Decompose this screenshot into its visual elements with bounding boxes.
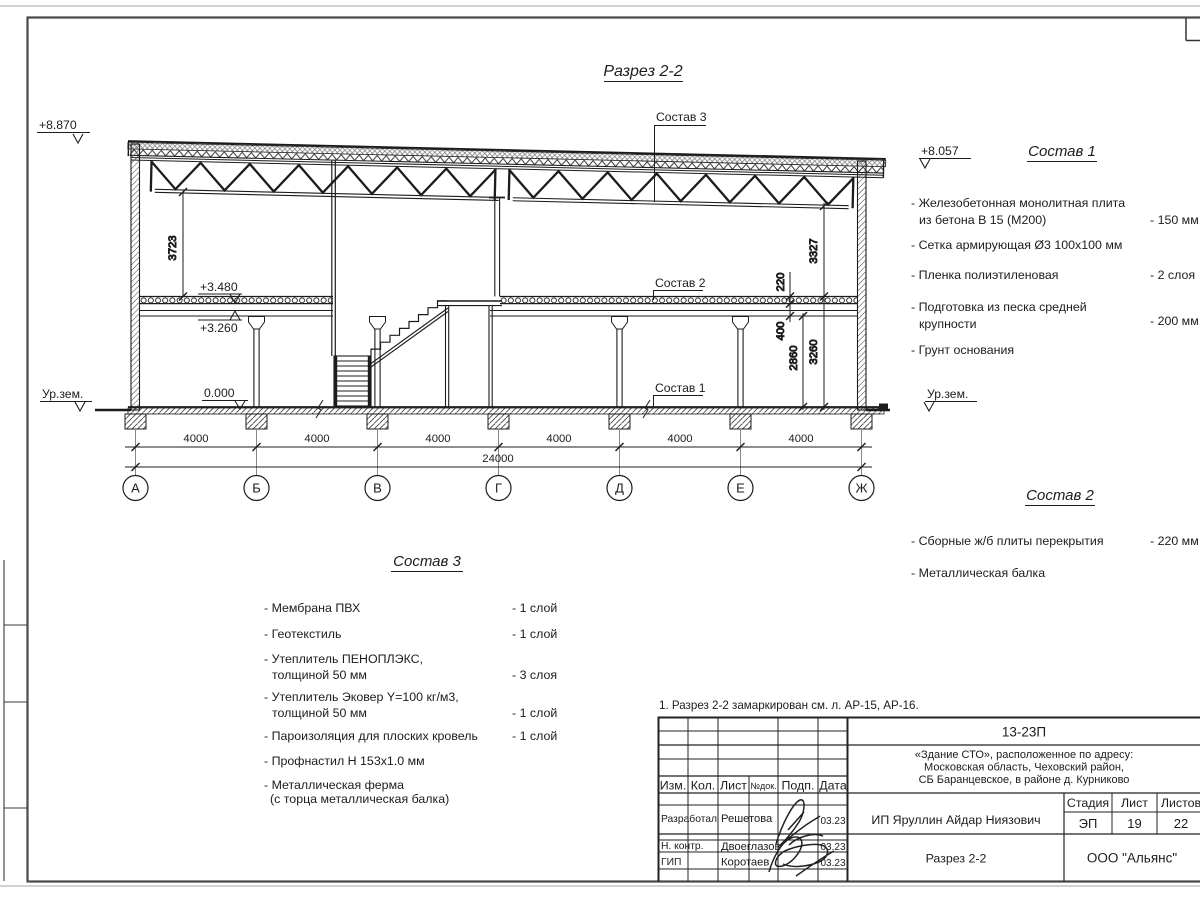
list-item: - Сборные ж/б плиты перекрытия [911,534,1104,548]
dim-bay-4: 4000 [546,433,571,445]
dim-3723: 3723 [167,235,179,260]
list-item: - Утеплитель ПЕНОПЛЭКС, [264,652,423,666]
dim-bay-5: 4000 [667,433,692,445]
list-item: - Профнастил Н 153х1.0 мм [264,754,425,768]
list-item-value: - 1 слой [512,706,557,720]
tb-col-data: Дата [819,779,847,793]
svg-text:Ур.зем.: Ур.зем. [42,387,83,401]
dim-bay-6: 4000 [788,433,813,445]
column-D [612,317,628,408]
elev-floor: 0.000 [202,386,248,409]
tb-col-podp: Подп. [782,779,815,793]
elev-ground-left: Ур.зем. [40,387,92,411]
corner-stamp-box [1186,18,1200,41]
section-drawing: Разрез 2-2 [0,0,1200,900]
list-item: из бетона В 15 (М200) [919,213,1046,227]
title-block: Изм. Кол. Лист №док. Подп. Дата Разработ… [658,718,1200,882]
sostav2-list: Состав 2 - Сборные ж/б плиты перекрытия … [911,487,1199,580]
left-margin-cells [4,560,27,881]
tb-row1-name: Решетова [721,813,773,825]
sostav1-title: Состав 1 [1028,143,1096,160]
axis-Zh: Ж [855,481,867,496]
list-item: - Утеплитель Эковер Y=100 кг/м3, [264,690,459,704]
roof-assembly [127,141,886,209]
dim-bay-3: 4000 [425,433,450,445]
truss-1 [151,161,500,201]
tb-list-label: Лист [1121,796,1148,810]
list-item: - Пленка полиэтиленовая [911,268,1059,282]
staircase [334,301,502,407]
sostav3-list: Состав 3 - Мембрана ПВХ - 1 слой - Геоте… [264,553,557,806]
tb-listov-label: Листов [1161,796,1200,810]
tb-object-line2: Московская область, Чеховский район, [924,762,1124,774]
list-item: - Металлическая балка [911,566,1045,580]
callout-sostav3: Состав 3 [656,110,707,124]
list-item-value: - 220 мм [1150,534,1199,548]
axis-E: Е [736,481,745,496]
list-item-value: - 150 мм [1150,213,1199,227]
list-item: - Железобетонная монолитная плита [911,196,1125,210]
column-E [733,317,749,408]
svg-text:+8.870: +8.870 [39,118,77,132]
sheet-note: 1. Разрез 2-2 замаркирован см. л. АР-15,… [659,699,919,712]
dimension-chain: 4000 4000 4000 4000 4000 4000 24000 [125,430,872,475]
list-item: - Пароизоляция для плоских кровель [264,729,478,743]
floor-slab [140,297,857,317]
tb-object-line3: СБ Баранцевское, в районе д. Курниково [919,774,1130,786]
dim-3260: 3260 [808,339,820,364]
list-item: - Геотекстиль [264,627,341,641]
dim-total: 24000 [482,453,513,465]
tb-doc-number: 13-23П [1002,725,1046,740]
truss-2 [509,169,854,209]
tb-col-kol: Кол. [691,779,716,793]
tb-drawing-name: Разрез 2-2 [926,852,987,866]
svg-text:+8.057: +8.057 [921,144,959,158]
list-item-value: - 2 слоя [1150,268,1195,282]
sostav3-title: Состав 3 [393,553,461,570]
axis-B: Б [252,481,261,496]
sheet: Разрез 2-2 [0,0,1200,900]
list-item-value: - 1 слой [512,627,557,641]
svg-text:+3.260: +3.260 [200,321,238,335]
elev-roof-left: +8.870 [37,118,90,143]
sostav1-list: Состав 1 - Железобетонная монолитная пли… [911,143,1199,357]
callout-sostav2: Состав 2 [655,276,706,290]
list-item: - Сетка армирующая Ø3 100х100 мм [911,238,1122,252]
list-item: - Подготовка из песка средней [911,300,1087,314]
drawing-title: Разрез 2-2 [603,63,682,80]
sostav2-title: Состав 2 [1026,487,1094,504]
tb-col-ndok: №док. [750,781,776,791]
elev-ground-right: Ур.зем. [924,387,977,411]
list-item: - Мембрана ПВХ [264,601,360,615]
tb-object-line1: «Здание СТО», расположенное по адресу: [915,749,1133,761]
tb-row1-date: 03.23 [820,816,845,827]
tb-row2-role: Н. контр. [661,841,704,852]
axis-D: Д [615,481,624,496]
list-item: толщиной 50 мм [272,668,367,682]
elev-roof-right: +8.057 [919,144,971,168]
tb-stage-label: Стадия [1067,796,1109,810]
axis-G: Г [495,481,502,496]
tb-col-izm: Изм. [660,779,687,793]
list-item-value: - 1 слой [512,601,557,615]
tb-row1-role: Разработал [661,813,717,825]
dim-2860: 2860 [788,345,800,370]
axis-bubbles: А Б В Г Д Е Ж [123,476,874,501]
axis-V: В [373,481,382,496]
list-item: - Металлическая ферма [264,778,404,792]
tb-stage-value: ЭП [1079,816,1098,831]
list-item: (с торца металлическая балка) [270,792,449,806]
list-item-value: - 1 слой [512,729,557,743]
tb-row3-role: ГИП [661,857,681,868]
metal-beam [140,311,857,317]
svg-text:Ур.зем.: Ур.зем. [927,387,968,401]
list-item: - Грунт основания [911,343,1014,357]
svg-text:+3.480: +3.480 [200,280,238,294]
tb-client: ИП Яруллин Айдар Ниязович [871,813,1040,827]
dim-220: 220 [775,273,787,292]
tb-list-value: 19 [1127,816,1141,831]
wall-axis-Zh [858,161,867,410]
callout-sostav1: Состав 1 [655,381,706,395]
list-item: толщиной 50 мм [272,706,367,720]
tb-row3-name: Коротаев [721,857,769,869]
list-item: крупности [919,317,977,331]
tb-col-list: Лист [720,779,747,793]
dim-3327: 3327 [808,238,820,263]
tb-row2-name: Двоеглазов [721,841,781,853]
dim-bay-2: 4000 [304,433,329,445]
elev-beam-bottom: +3.260 [198,311,242,335]
list-item-value: - 3 слоя [512,668,557,682]
svg-text:0.000: 0.000 [204,386,235,400]
dim-bay-1: 4000 [183,433,208,445]
footings [125,414,872,429]
axis-A: А [131,481,140,496]
ground-edge-detail [879,404,888,410]
dim-400: 400 [775,322,787,341]
tb-listov-value: 22 [1174,816,1188,831]
column-B [249,317,265,408]
list-item-value: - 200 мм [1150,314,1199,328]
tb-company: ООО "Альянс" [1087,851,1177,866]
wall-axis-A [131,144,140,410]
